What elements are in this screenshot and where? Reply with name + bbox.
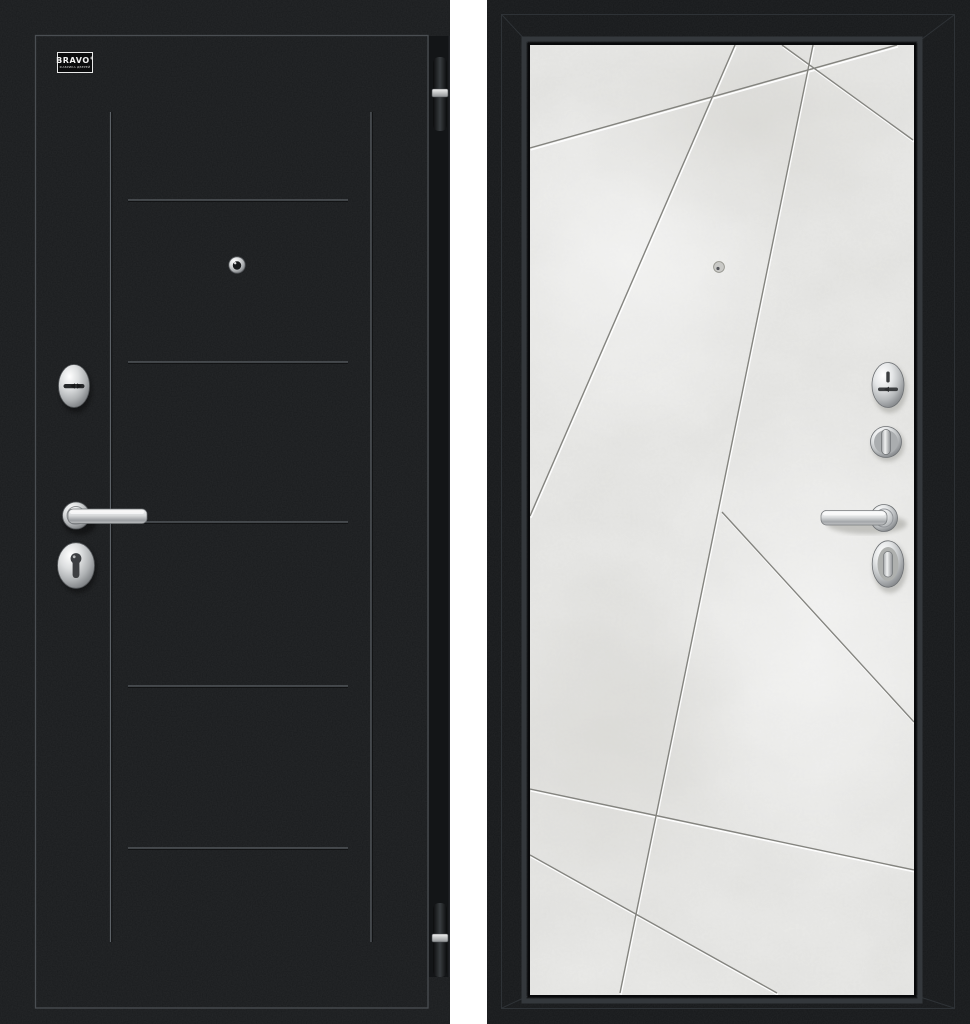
bravo-logo: BRAVO® ФАБРИКА ДВЕРЕЙ <box>57 52 93 73</box>
white-door-leaf <box>487 10 970 995</box>
door-product-photo: BRAVO® ФАБРИКА ДВЕРЕЙ <box>0 0 970 1024</box>
peephole <box>714 262 725 273</box>
door-edge-strip <box>429 36 450 977</box>
right-door-panel <box>487 0 970 1024</box>
registered-mark: ® <box>90 56 94 60</box>
hinge-bottom <box>432 903 448 977</box>
left-door-panel <box>0 0 450 1024</box>
peephole <box>229 257 245 273</box>
hinge-top <box>432 57 448 131</box>
bravo-logo-tagline: ФАБРИКА ДВЕРЕЙ <box>60 66 91 69</box>
bravo-logo-brand: BRAVO® <box>56 57 94 65</box>
